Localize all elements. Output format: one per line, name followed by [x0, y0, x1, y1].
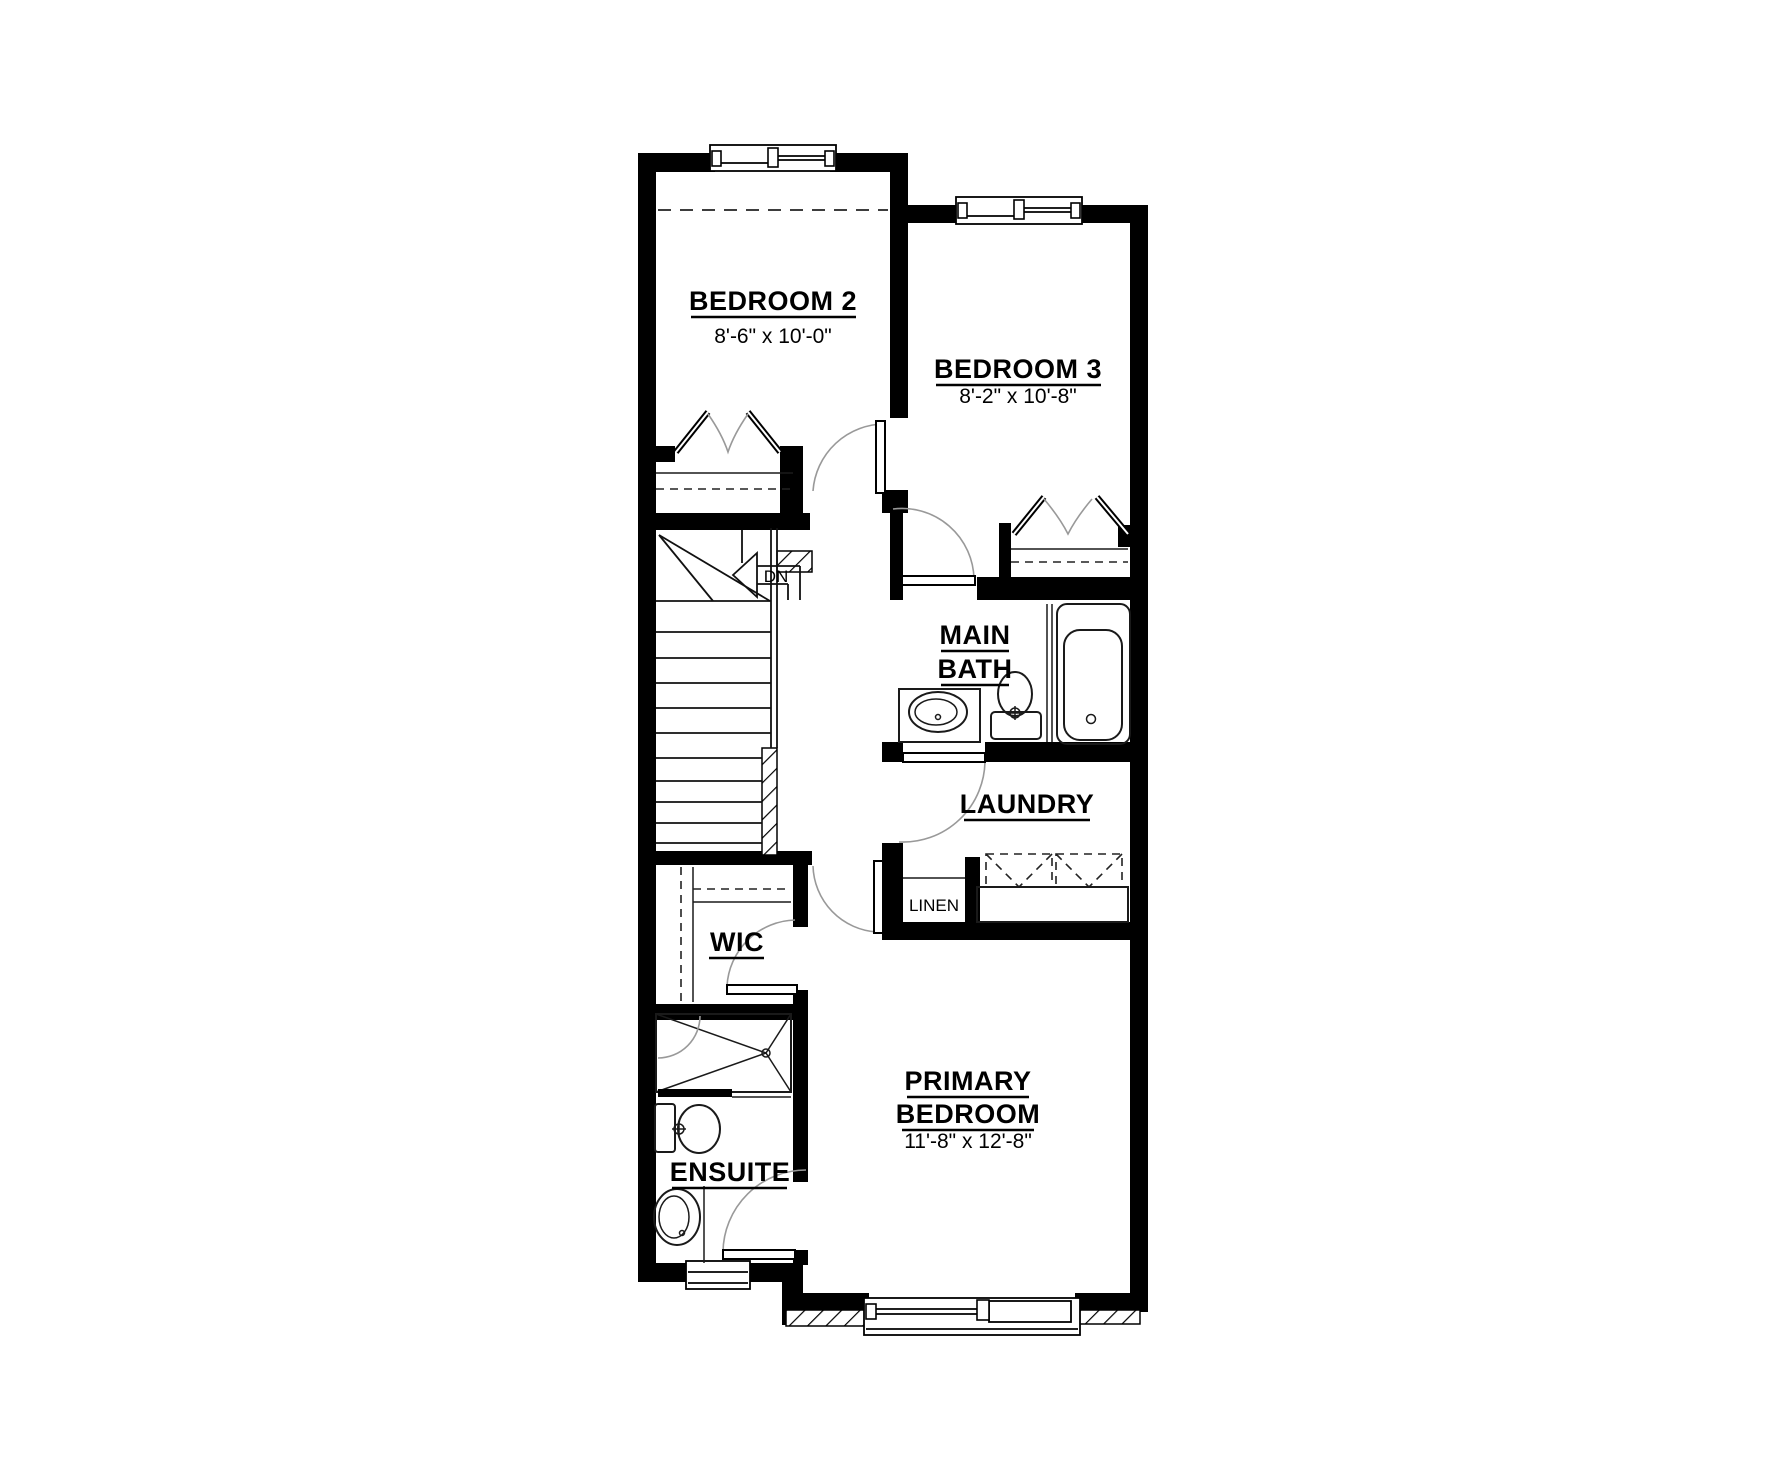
bedroom2-name: BEDROOM 2 — [689, 286, 857, 316]
bedroom3-closet-bifold — [1014, 497, 1128, 534]
linen-name: LINEN — [909, 896, 959, 915]
floor-plan: DN — [0, 0, 1780, 1480]
main-bath-door — [893, 508, 975, 585]
ensuite-window — [686, 1261, 750, 1289]
main-bath-name-line2: BATH — [938, 654, 1013, 684]
ensuite-label: ENSUITE — [670, 1157, 791, 1188]
ensuite-fixtures — [654, 1014, 791, 1263]
main-bath-label: MAIN BATH — [938, 620, 1013, 685]
bedroom2-dims: 8'-6" x 10'-0" — [714, 325, 831, 348]
wic-label: WIC — [709, 927, 764, 958]
laundry-counter — [977, 887, 1128, 922]
laundry-name: LAUNDRY — [960, 789, 1095, 819]
primary-bedroom-door — [813, 861, 883, 933]
wic-name: WIC — [710, 927, 764, 957]
laundry-label: LAUNDRY — [960, 789, 1095, 820]
main-bath-name-line1: MAIN — [940, 620, 1011, 650]
bedroom3-dims: 8'-2" x 10'-8" — [959, 385, 1076, 408]
bedroom2-label: BEDROOM 2 8'-6" x 10'-0" — [689, 286, 857, 348]
ensuite-sink — [654, 1186, 704, 1263]
primary-bedroom-dims: 11'-8" x 12'-8" — [904, 1130, 1032, 1153]
bedroom3-door — [813, 421, 885, 493]
stairs-dn-label: DN — [764, 567, 789, 586]
primary-bedroom-label: PRIMARY BEDROOM 11'-8" x 12'-8" — [896, 1066, 1041, 1153]
main-bath-vanity-sink — [899, 689, 980, 742]
main-bath-fixtures — [899, 604, 1130, 744]
dryer — [1056, 854, 1122, 887]
ensuite-name: ENSUITE — [670, 1157, 791, 1187]
bedroom3-label: BEDROOM 3 8'-2" x 10'-8" — [934, 354, 1102, 408]
primary-bedroom-name-line2: BEDROOM — [896, 1099, 1041, 1129]
linen-label: LINEN — [909, 896, 959, 915]
shower — [656, 1014, 791, 1097]
bedroom3-window — [956, 197, 1082, 224]
primary-bedroom-name-line1: PRIMARY — [904, 1066, 1031, 1096]
bedroom3-name: BEDROOM 3 — [934, 354, 1102, 384]
stairs: DN — [656, 528, 800, 843]
laundry-fixtures — [977, 854, 1128, 922]
bedroom2-window — [710, 145, 836, 171]
primary-bedroom-window — [864, 1298, 1080, 1335]
bathtub — [1057, 604, 1130, 744]
washer — [986, 854, 1052, 887]
floor-plan-page: DN — [0, 0, 1780, 1480]
ensuite-toilet — [655, 1104, 720, 1153]
bedroom2-closet-bifold — [676, 412, 780, 452]
